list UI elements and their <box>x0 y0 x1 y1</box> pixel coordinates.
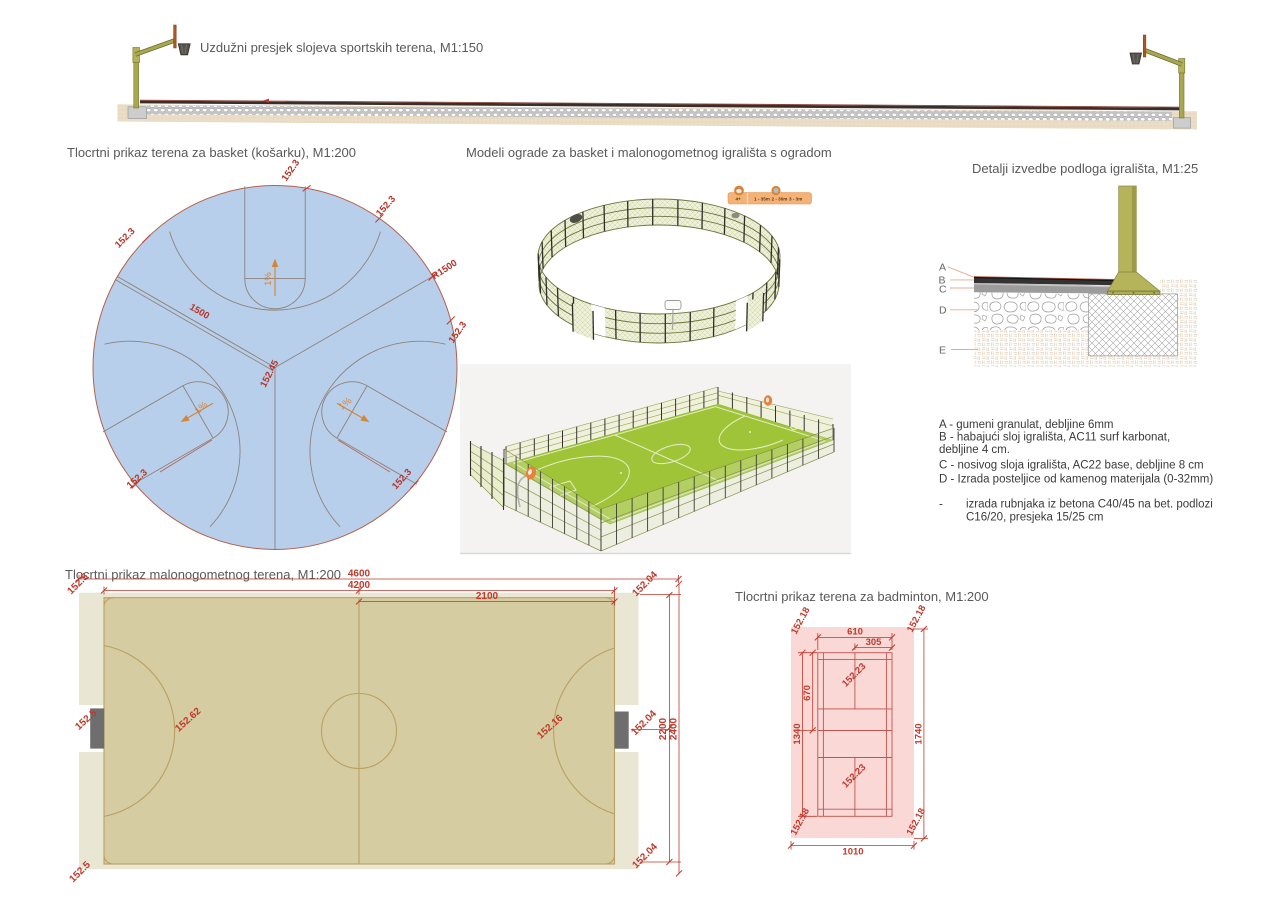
svg-text:Tlocrtni prikaz terena za badm: Tlocrtni prikaz terena za badminton, M1:… <box>735 589 989 604</box>
svg-text:debljine 4 cm.: debljine 4 cm. <box>939 444 1010 456</box>
svg-text:4600: 4600 <box>348 569 371 580</box>
svg-text:D: D <box>939 304 947 316</box>
svg-text:4200: 4200 <box>348 580 371 591</box>
svg-text:C - nosivog sloja igrališta, A: C - nosivog sloja igrališta, AC22 base, … <box>939 460 1204 472</box>
svg-text:610: 610 <box>847 627 863 638</box>
svg-text:1 - 35m: 1 - 35m <box>754 196 770 201</box>
svg-text:3 - 3m: 3 - 3m <box>789 196 802 201</box>
svg-text:C: C <box>939 283 947 295</box>
svg-text:1740: 1740 <box>913 723 924 744</box>
svg-text:1%: 1% <box>263 272 274 286</box>
svg-text:A: A <box>939 261 946 273</box>
svg-text:Tlocrtni prikaz malonogometnog: Tlocrtni prikaz malonogometnog terena, M… <box>65 567 341 582</box>
svg-text:2400: 2400 <box>669 717 680 740</box>
svg-text:izrada rubnjaka iz betona C40/: izrada rubnjaka iz betona C40/45 na bet.… <box>966 499 1213 511</box>
svg-text:1340: 1340 <box>792 723 803 744</box>
svg-text:4+: 4+ <box>736 196 742 201</box>
svg-text:E: E <box>939 345 946 357</box>
svg-text:2200: 2200 <box>658 717 669 740</box>
svg-text:C16/20, presjeka 15/25 cm: C16/20, presjeka 15/25 cm <box>966 512 1103 524</box>
svg-text:-: - <box>939 499 943 511</box>
svg-text:Modeli ograde za basket i malo: Modeli ograde za basket i malonogometnog… <box>466 145 832 160</box>
svg-text:670: 670 <box>802 685 813 701</box>
svg-text:2 - 30m: 2 - 30m <box>772 196 788 201</box>
svg-text:1010: 1010 <box>842 847 863 858</box>
svg-text:2100: 2100 <box>476 591 499 602</box>
svg-text:Detalji izvedbe podloga igrali: Detalji izvedbe podloga igrališta, M1:25 <box>972 161 1198 176</box>
svg-text:D - Izrada posteljice od kamen: D - Izrada posteljice od kamenog materij… <box>939 474 1213 486</box>
svg-text:Tlocrtni prikaz terena za bask: Tlocrtni prikaz terena za basket (košark… <box>67 145 356 160</box>
svg-text:B - habajući sloj igrališta,: B - habajući sloj igrališta, AC11 surf k… <box>939 432 1170 444</box>
svg-text:A - gumeni granulat, debljine: A - gumeni granulat, debljine 6mm <box>939 419 1114 431</box>
svg-text:Uzdužni presjek slojeva sports: Uzdužni presjek slojeva sportskih terena… <box>200 40 483 55</box>
svg-text:305: 305 <box>866 637 883 648</box>
